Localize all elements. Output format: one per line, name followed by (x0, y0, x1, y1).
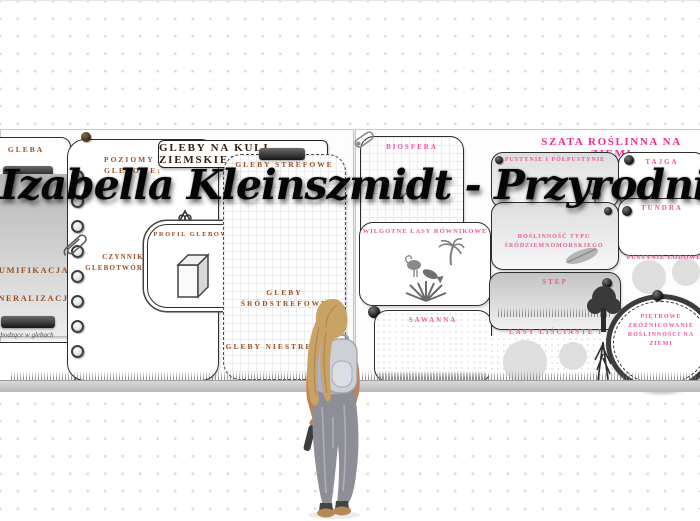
pietrowe-label: PIĘTROWE ZRÓŻNICOWANIE ROŚLINNOŚCI NA ZI… (619, 313, 700, 349)
push-pin-icon (652, 290, 663, 301)
gleba-label: GLEBA (0, 144, 70, 155)
pustynie-lodowe-label: PUSTYNIE LODOWE (622, 254, 700, 263)
watermark-text: Izabella Kleinszmidt - PrzyrodniczeEcho (0, 161, 700, 209)
sawanna-label: SAWANNA (375, 315, 491, 326)
scene: GLEBA HUMIFIKACJA MINERALIZACJA Procesy … (0, 0, 700, 521)
processes-caption: Procesy zachodzące w glebach (0, 331, 54, 339)
background-circle (559, 342, 587, 370)
palm-tree-icon (436, 237, 466, 267)
wilgotne-lasy-panel: WILGOTNE LASY RÓWNIKOWE (359, 222, 491, 306)
binder-clip-icon (1, 316, 55, 328)
fern-icon (400, 279, 452, 303)
wilgotne-lasy-label: WILGOTNE LASY RÓWNIKOWE (360, 227, 490, 237)
srodziemnomorska-panel: ROŚLINNOŚĆ TYPU ŚRÓDZIEMNOMORSKIEGO (491, 202, 619, 270)
soil-profile-cube-icon (172, 251, 218, 301)
background-circle (632, 260, 666, 294)
biosfera-label: BIOSFERA (361, 142, 463, 153)
push-pin-icon (81, 132, 91, 142)
woman-figure (286, 297, 380, 521)
binder-clip-icon (259, 148, 305, 160)
